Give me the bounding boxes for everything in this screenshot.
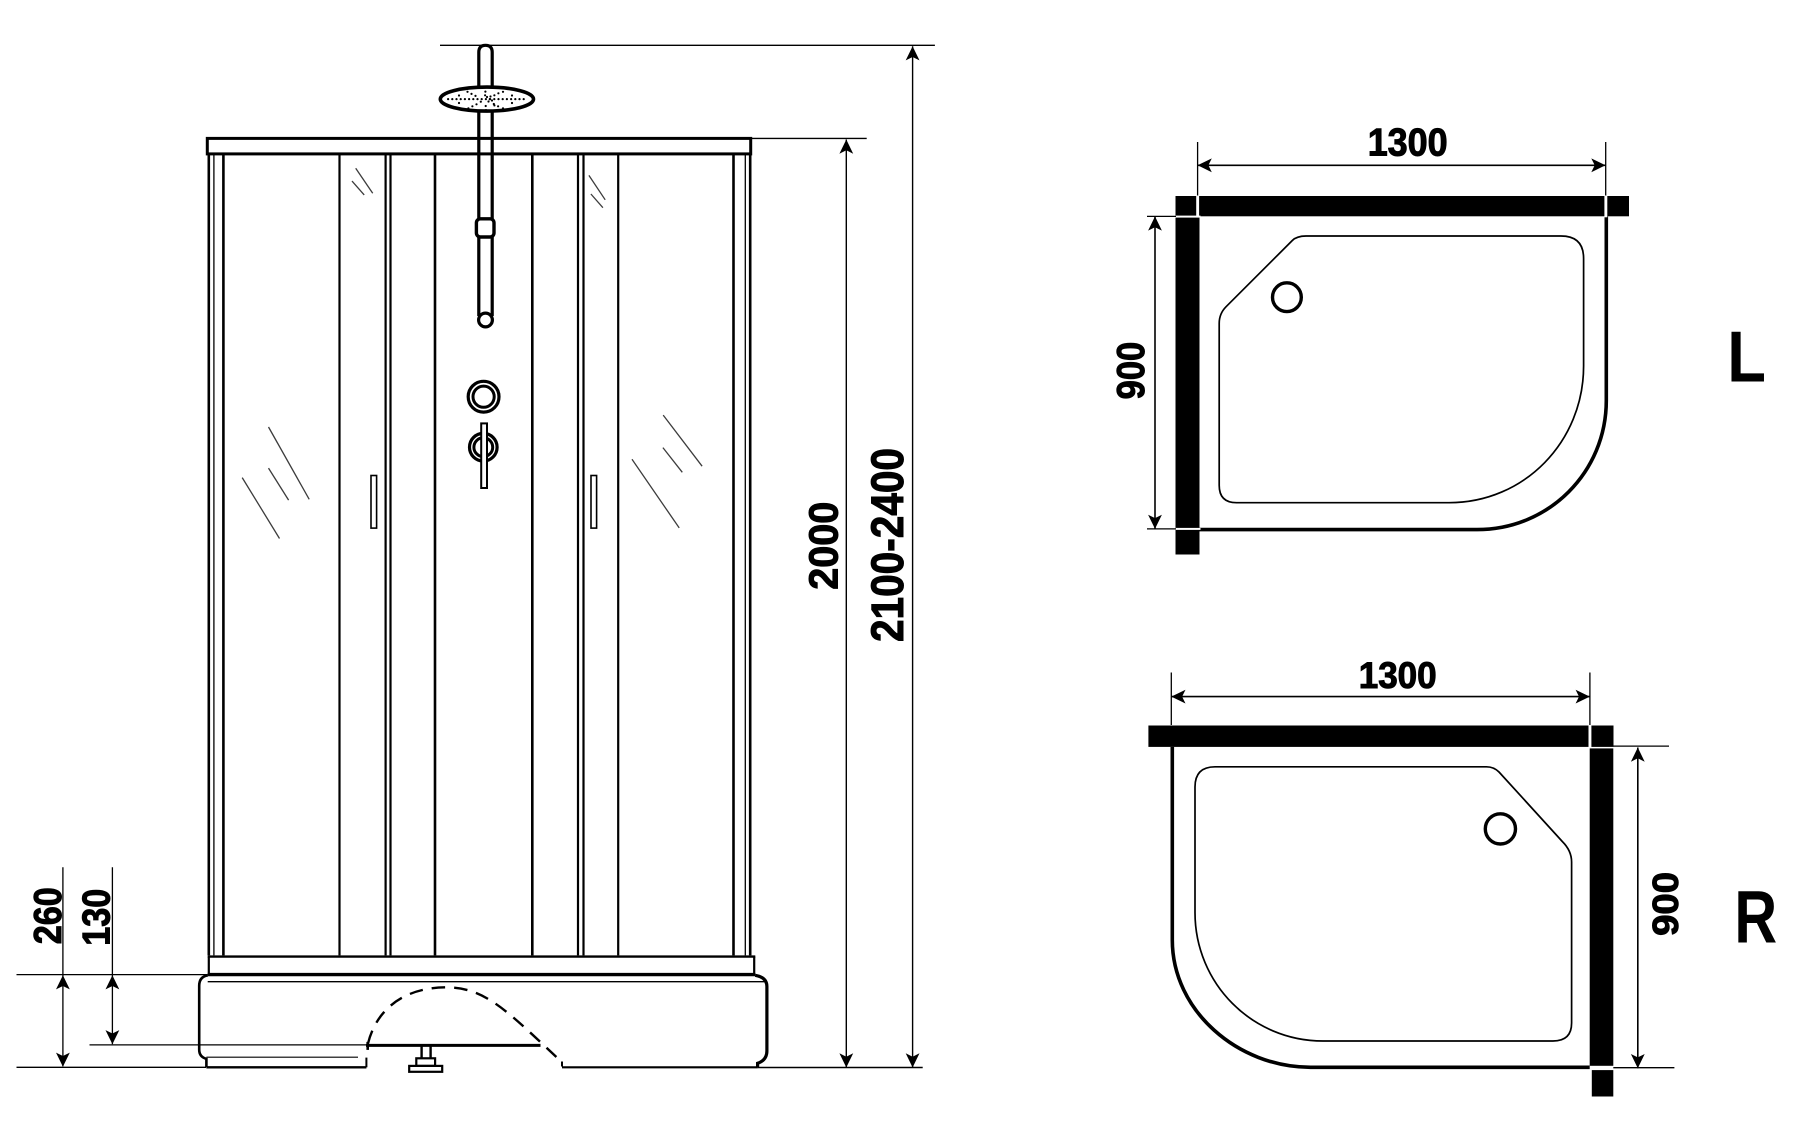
svg-text:2100-2400: 2100-2400 <box>862 448 913 642</box>
svg-text:130: 130 <box>76 889 119 946</box>
svg-text:L: L <box>1727 318 1766 398</box>
svg-text:R: R <box>1734 876 1777 959</box>
svg-text:260: 260 <box>27 887 70 944</box>
svg-text:1300: 1300 <box>1359 655 1437 696</box>
svg-text:2000: 2000 <box>800 502 846 590</box>
svg-text:900: 900 <box>1645 872 1686 936</box>
svg-text:1300: 1300 <box>1368 122 1448 165</box>
svg-text:900: 900 <box>1110 342 1153 400</box>
